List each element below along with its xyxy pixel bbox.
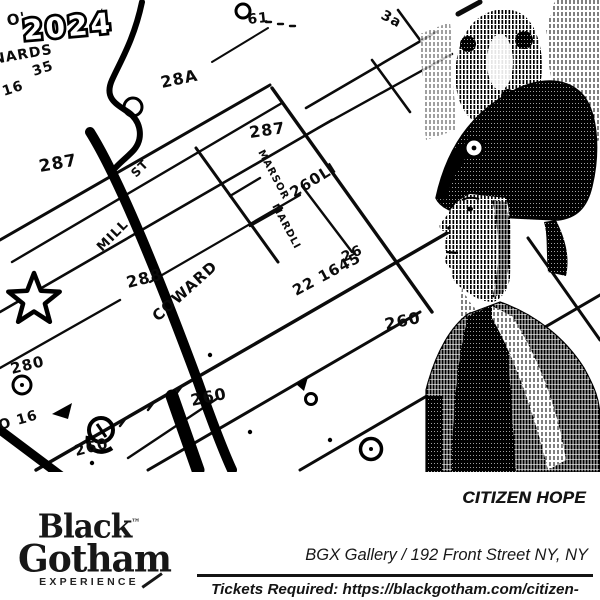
map-annotation: ST	[128, 157, 151, 180]
map-annotation: 280	[9, 352, 47, 378]
map-annotation: 3a	[378, 7, 404, 31]
map-annotation: 22 1645	[289, 248, 364, 299]
map-annotation: 16	[0, 78, 25, 100]
map-annotations: O'NARDS3516613a28A287287STMILLCOWARDMARS…	[0, 7, 422, 459]
tickets-url: Tickets Required: https://blackgotham.co…	[197, 581, 593, 600]
map-annotation: MARDLI	[269, 202, 302, 251]
map-annotation: O 16	[0, 407, 40, 433]
trademark-symbol: ™	[131, 518, 140, 528]
map-annotation: 35	[30, 58, 55, 80]
map-annotation: 287	[248, 118, 287, 142]
map-annotation: 287	[37, 151, 78, 177]
black-gotham-logo: Black™ Gotham EXPERIENCE	[18, 514, 160, 588]
arrow-mark-icon	[52, 403, 72, 419]
face-profile	[440, 194, 512, 302]
logo-word-gotham: Gotham	[18, 542, 160, 576]
map-annotation: 260	[73, 434, 111, 460]
map-art: O'NARDS3516613a28A287287STMILLCOWARDMARS…	[0, 0, 600, 472]
map-annotation: 260	[383, 308, 423, 334]
footer-divider-line	[197, 574, 593, 577]
coat-and-collar	[426, 288, 600, 472]
eye-icon	[467, 207, 473, 212]
year-badge: 2024	[22, 6, 114, 47]
map-annotation: 61	[247, 10, 270, 28]
venue-address: BGX Gallery / 192 Front Street NY, NY	[305, 546, 588, 565]
map-annotation: MILL	[94, 217, 132, 255]
halftone-portrait	[420, 0, 600, 472]
map-annotation: 28A	[159, 65, 200, 91]
poster-canvas: O'NARDS3516613a28A287287STMILLCOWARDMARS…	[0, 0, 600, 600]
star-icon	[8, 273, 59, 322]
survey-mark-icon	[306, 394, 317, 405]
event-title: CITIZEN HOPE	[462, 488, 586, 508]
map-annotation: MARSOR	[255, 148, 290, 202]
map-annotation: 260LI	[287, 159, 340, 202]
halftone-sky	[420, 22, 456, 140]
